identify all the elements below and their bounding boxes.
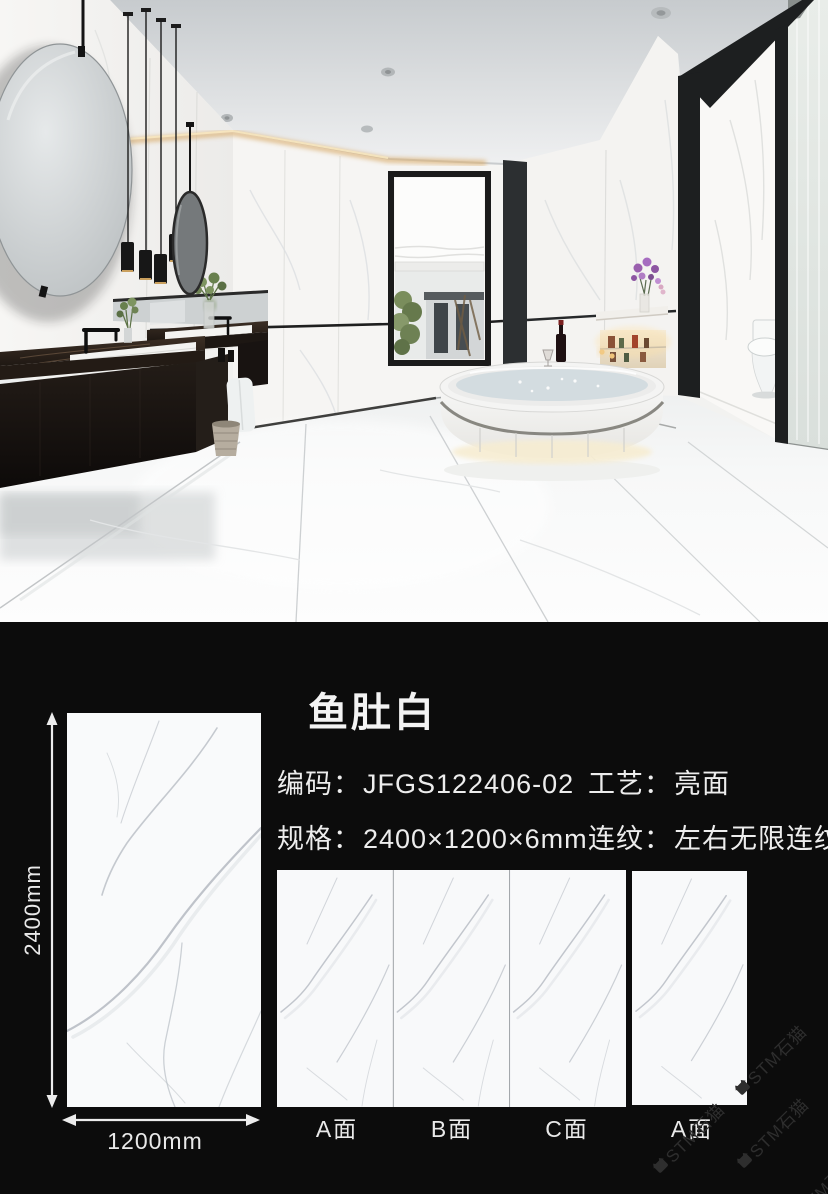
photo-outdoor-view xyxy=(391,271,484,359)
field-size: 规格：2400×1200×6mm xyxy=(277,817,588,856)
cat-logo-icon xyxy=(653,1158,669,1174)
pattern-value: 左右无限连纹 xyxy=(674,824,828,854)
photo-glass-partition xyxy=(788,0,828,450)
watermark-text: STM石猫 xyxy=(741,1019,812,1090)
size-label: 规格： xyxy=(277,824,361,854)
photo-roman-shade xyxy=(395,178,484,271)
watermark-text: STM石猫 xyxy=(791,1150,828,1194)
field-code: 编码：JFGS122406-02 xyxy=(277,762,574,801)
code-label: 编码： xyxy=(277,769,361,799)
finish-label: 工艺： xyxy=(588,769,672,799)
product-title: 鱼肚白 xyxy=(308,680,437,738)
field-pattern: 连纹：左右无限连纹 xyxy=(588,817,828,856)
size-value: 2400×1200×6mm xyxy=(363,824,588,854)
pattern-label: 连纹： xyxy=(588,824,672,854)
tile-swatch-main xyxy=(67,713,261,1107)
height-arrow-icon xyxy=(45,712,59,1108)
code-value: JFGS122406-02 xyxy=(363,769,574,799)
face-label-c: C面 xyxy=(527,1110,607,1144)
face-label-b: B面 xyxy=(412,1110,492,1144)
width-dimension-label: 1200mm xyxy=(95,1128,215,1155)
tile-panels-abc xyxy=(277,870,626,1107)
tile-panel-a-repeat xyxy=(632,871,747,1105)
watermark: STM石猫 xyxy=(779,1150,828,1194)
photo-basket xyxy=(212,421,240,457)
face-label-a: A面 xyxy=(297,1110,377,1144)
cat-logo-icon xyxy=(737,1153,753,1169)
photo-shelf-niche xyxy=(595,306,671,368)
width-arrow-icon xyxy=(62,1112,260,1128)
product-spec-page: 鱼肚白 编码：JFGS122406-02 工艺：亮面 规格：2400×1200×… xyxy=(0,0,828,1194)
bathroom-photo xyxy=(0,0,828,622)
photo-window xyxy=(391,174,488,363)
watermark-text: STM石猫 xyxy=(743,1092,814,1163)
finish-value: 亮面 xyxy=(674,769,730,799)
field-finish: 工艺：亮面 xyxy=(588,762,730,801)
height-dimension-label: 2400mm xyxy=(20,850,46,970)
